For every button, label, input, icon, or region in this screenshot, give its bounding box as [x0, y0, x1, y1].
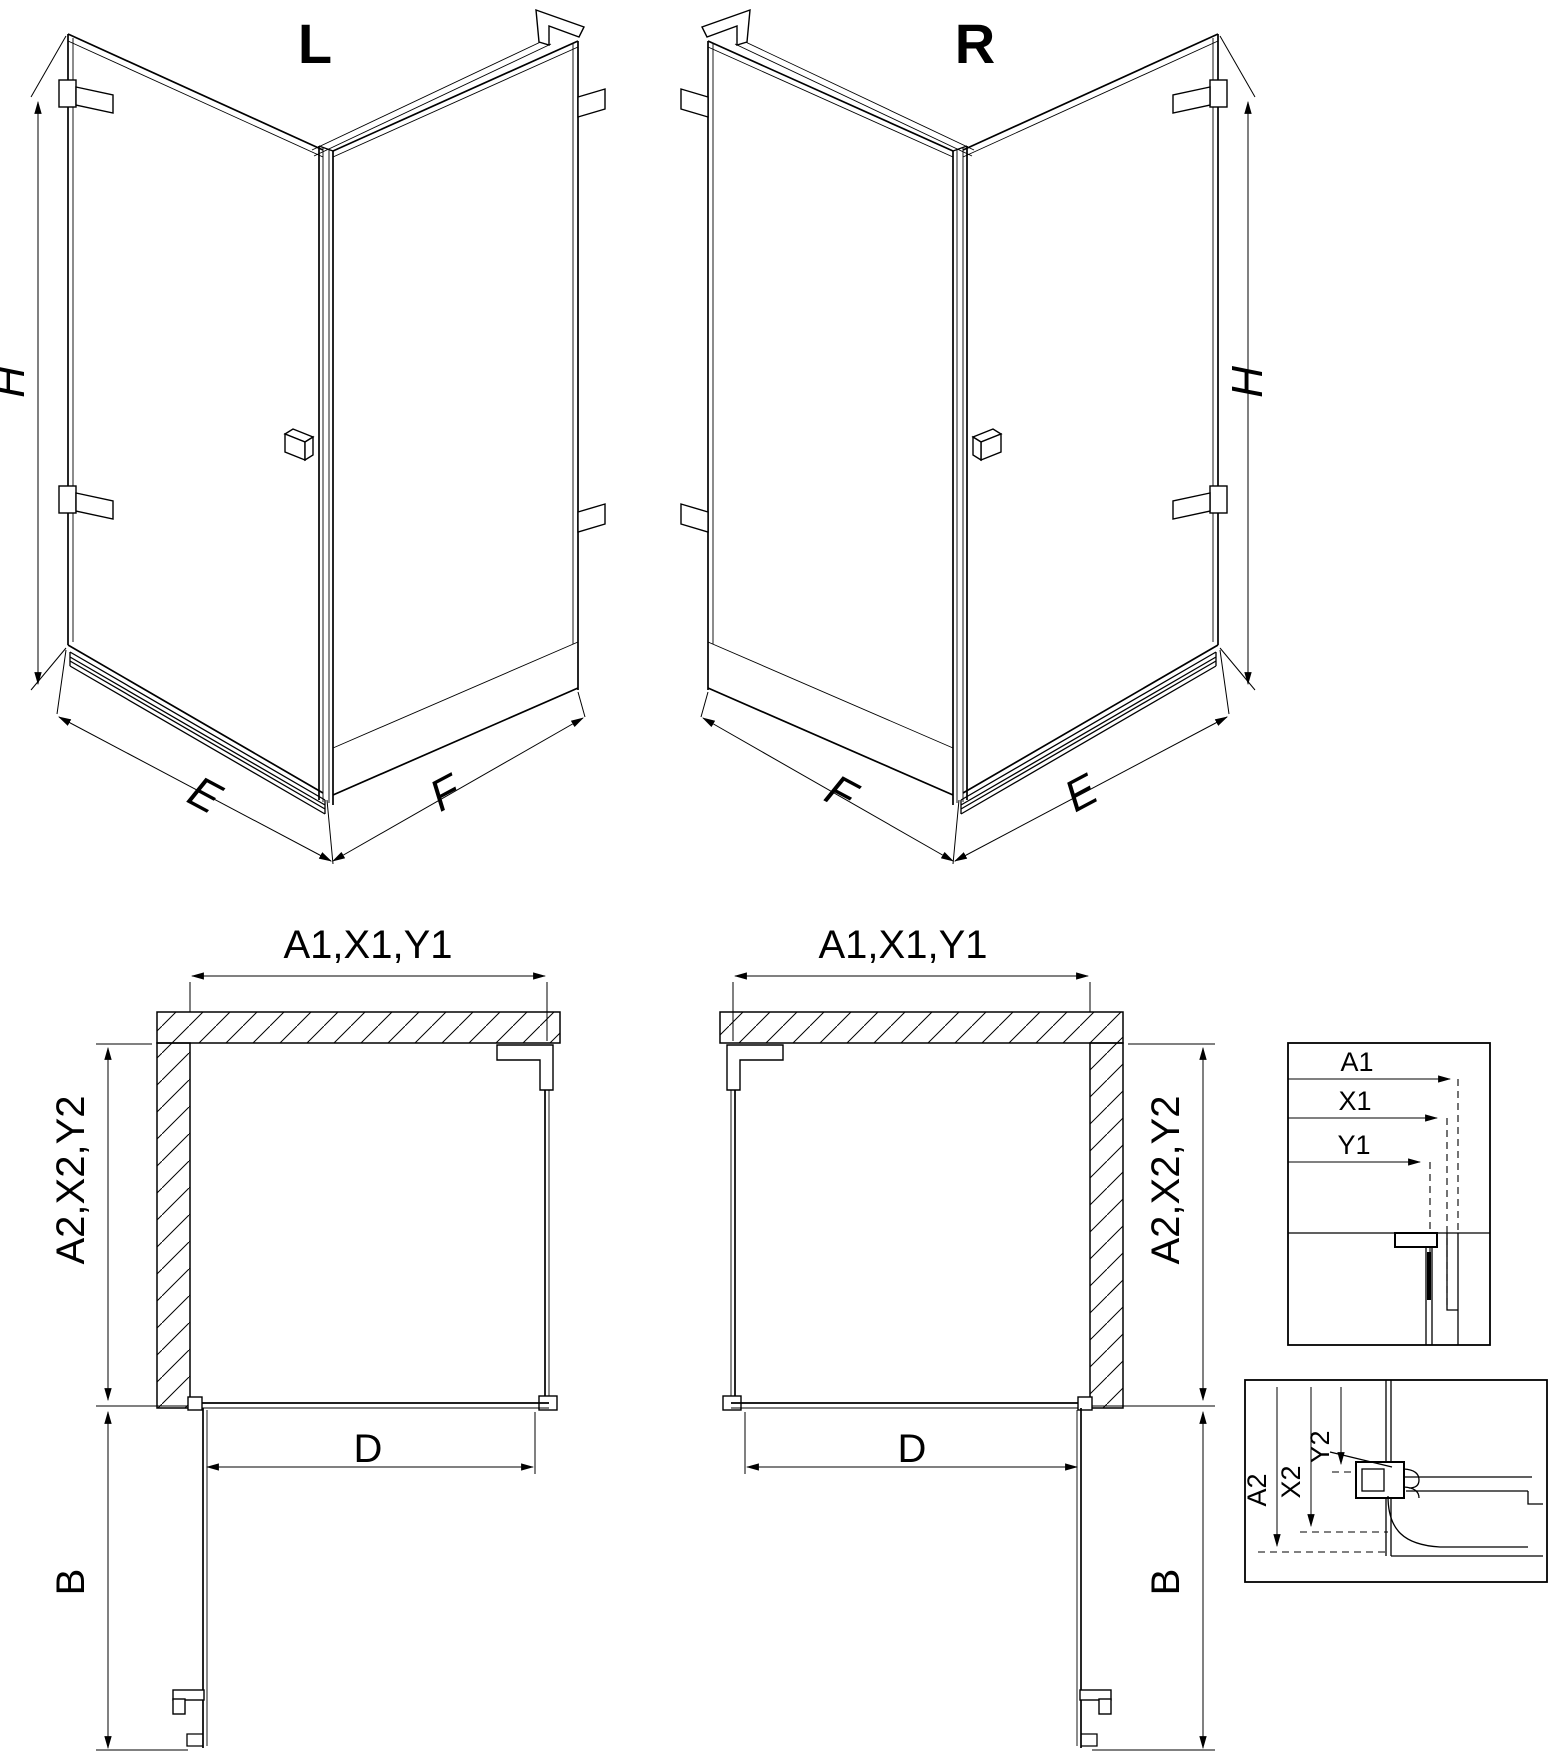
iso-l-label: L — [298, 12, 332, 75]
plan-view-l: A1,X1,Y1 A2,X2,Y2 B D — [49, 923, 560, 1750]
detail-box-top: A1 X1 Y1 — [1288, 1043, 1490, 1345]
plan-l-clearance-label: B — [49, 1569, 93, 1596]
iso-view-r-labels: R H F E — [817, 12, 1272, 822]
plan-r-side-dim-label: A2,X2,Y2 — [1144, 1095, 1188, 1264]
iso-r-label: R — [955, 12, 995, 75]
dim-h-label-r: H — [1223, 366, 1272, 398]
plan-l-door-dim-label: D — [354, 1427, 383, 1471]
detail-a1-label: A1 — [1340, 1047, 1373, 1077]
plan-l-side-dim-label: A2,X2,Y2 — [49, 1095, 93, 1264]
plan-view-r: A1,X1,Y1 A2,X2,Y2 B D — [720, 923, 1215, 1750]
iso-view-l-labels: L H E F — [0, 12, 470, 824]
iso-view-l-geometry — [31, 10, 605, 864]
detail-y2-label: Y2 — [1305, 1430, 1335, 1463]
plan-l-top-dim-label: A1,X1,Y1 — [283, 923, 452, 967]
detail-y1-label: Y1 — [1337, 1130, 1370, 1160]
dim-f-label-r: F — [817, 765, 866, 822]
detail-x1-label: X1 — [1338, 1086, 1371, 1116]
dim-f-label-l: F — [422, 764, 471, 821]
plan-r-clearance-label: B — [1144, 1569, 1188, 1596]
dim-e-label-l: E — [180, 767, 229, 824]
detail-a2-label: A2 — [1242, 1473, 1272, 1506]
plan-r-top-dim-label: A1,X1,Y1 — [818, 923, 987, 967]
shower-enclosure-diagram: L H E F R H F E A1,X1,Y1 A2,X2,Y2 — [0, 0, 1561, 1756]
detail-box-bottom: A2 X2 Y2 — [1242, 1380, 1547, 1582]
dim-h-label-l: H — [0, 366, 34, 398]
technical-drawing-page: L H E F R H F E A1,X1,Y1 A2,X2,Y2 — [0, 0, 1561, 1756]
dim-e-label-r: E — [1057, 764, 1106, 821]
detail-x2-label: X2 — [1276, 1465, 1306, 1498]
iso-view-r-geometry — [681, 10, 1255, 864]
plan-r-door-dim-label: D — [898, 1427, 927, 1471]
